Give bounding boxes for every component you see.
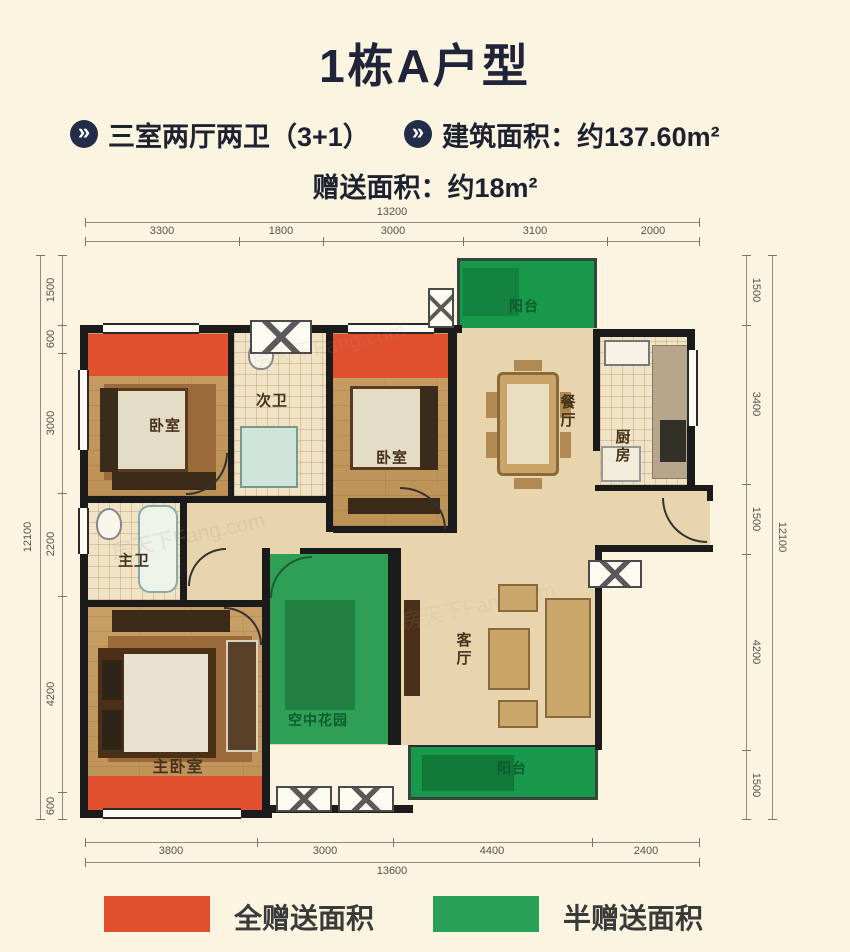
feature-area: » 建筑面积：约137.60m² <box>404 118 720 150</box>
dim-right-seg: 1500 <box>750 507 762 531</box>
armchair <box>498 700 538 728</box>
tv-cabinet <box>404 600 420 696</box>
dim-top-total: 13200 <box>377 206 408 218</box>
chair <box>486 392 497 418</box>
wall-segment <box>707 485 713 501</box>
wall-segment <box>80 496 332 503</box>
wall-segment <box>595 545 713 552</box>
closet-hatch <box>338 786 394 812</box>
room-label-bedroom1: 卧室 <box>149 415 181 436</box>
window <box>78 508 89 554</box>
dim-top-seg: 1800 <box>269 225 293 237</box>
dim-left-seg: 600 <box>45 797 57 815</box>
wardrobe <box>226 640 258 752</box>
window <box>687 350 698 426</box>
kitchen-sink <box>604 340 650 366</box>
toilet <box>96 508 122 540</box>
wall-segment <box>300 548 392 554</box>
chair <box>486 432 497 458</box>
bonus-strip-red <box>333 334 448 378</box>
feature-layout-text: 三室两厅两卫（3+1） <box>108 115 370 154</box>
window <box>103 808 241 819</box>
feature-layout: » 三室两厅两卫（3+1） <box>70 118 370 150</box>
dim-right-seg: 3400 <box>750 392 762 416</box>
wall-segment <box>262 600 270 812</box>
wall-segment <box>228 332 234 500</box>
page-title: 1栋A户型 <box>0 30 850 96</box>
window <box>78 370 89 450</box>
legend-label-half-bonus: 半赠送面积 <box>563 897 703 937</box>
dim-right-total: 12100 <box>776 522 788 553</box>
wall-segment <box>388 548 401 745</box>
bed-duvet <box>124 654 208 752</box>
dim-top-seg: 3100 <box>523 225 547 237</box>
chair <box>514 360 542 371</box>
sofa <box>545 598 591 718</box>
bonus-strip-red <box>87 334 228 376</box>
dining-table-top <box>507 384 549 464</box>
dim-top-seg: 2000 <box>641 225 665 237</box>
room-label-balcony-bottom: 阳台 <box>497 758 527 778</box>
room-label-second-bath: 次卫 <box>256 390 288 411</box>
room-label-dining: 餐厅 <box>557 394 578 430</box>
wall-segment <box>80 600 270 607</box>
room-label-sky-garden: 空中花园 <box>288 710 348 730</box>
dim-left-seg: 2200 <box>45 532 57 556</box>
room-label-bedroom2: 卧室 <box>376 447 408 468</box>
room-label-master-bath: 主卫 <box>118 550 150 571</box>
wall-segment <box>262 548 270 606</box>
wall-segment <box>326 332 333 532</box>
window <box>103 323 199 334</box>
dim-bottom-seg: 2400 <box>634 845 658 857</box>
chair <box>514 478 542 489</box>
shower <box>240 426 298 488</box>
armchair <box>498 584 538 612</box>
dim-bottom-seg: 3000 <box>313 845 337 857</box>
wall-segment <box>595 485 695 491</box>
pillow <box>102 660 122 700</box>
legend-swatch-half-bonus <box>433 896 539 932</box>
room-label-master-bedroom: 主卧室 <box>152 753 203 777</box>
wall-segment <box>180 498 187 602</box>
feature-area-text: 建筑面积：约137.60m² <box>442 115 720 154</box>
double-chevron-circle-icon: » <box>404 120 432 148</box>
wall-segment <box>448 329 457 532</box>
dim-left-seg: 3000 <box>45 411 57 435</box>
pillow <box>102 710 122 750</box>
dim-left-seg: 1500 <box>45 278 57 302</box>
floorplan-page: 1栋A户型 » 三室两厅两卫（3+1） » 建筑面积：约137.60m² 赠送面… <box>0 0 850 952</box>
bed-headboard <box>100 388 118 472</box>
bed-headboard <box>420 386 438 470</box>
legend-swatch-full-bonus <box>104 896 210 932</box>
dresser <box>112 610 230 632</box>
dim-left-total: 12100 <box>22 522 34 553</box>
legend-label-full-bonus: 全赠送面积 <box>234 897 374 937</box>
dim-bottom-seg: 4400 <box>480 845 504 857</box>
wall-segment <box>593 329 600 451</box>
window <box>348 323 434 334</box>
dim-right-seg: 1500 <box>750 278 762 302</box>
coffee-table <box>488 628 530 690</box>
dim-bottom-total: 13600 <box>377 865 408 877</box>
stove <box>660 420 686 462</box>
closet-hatch <box>588 560 642 588</box>
dim-left-seg: 600 <box>45 330 57 348</box>
dim-top-seg: 3300 <box>150 225 174 237</box>
dim-right-seg: 4200 <box>750 640 762 664</box>
wall-segment <box>593 329 695 337</box>
double-chevron-circle-icon: » <box>70 120 98 148</box>
room-label-living: 客厅 <box>453 632 474 668</box>
bonus-strip-red <box>87 776 262 812</box>
closet-hatch <box>276 786 332 812</box>
dim-right-seg: 1500 <box>750 773 762 797</box>
legend: 全赠送面积 半赠送面积 <box>0 896 850 936</box>
closet-hatch <box>250 320 312 354</box>
room-label-balcony-top: 阳台 <box>509 296 539 316</box>
garden-furniture <box>285 600 355 710</box>
shaft-hatch <box>428 288 454 328</box>
room-label-kitchen: 厨房 <box>612 429 633 465</box>
dim-top-seg: 3000 <box>381 225 405 237</box>
bonus-area-text: 赠送面积：约18m² <box>0 166 850 205</box>
dim-left-seg: 4200 <box>45 682 57 706</box>
dim-bottom-seg: 3800 <box>159 845 183 857</box>
chair <box>560 432 571 458</box>
